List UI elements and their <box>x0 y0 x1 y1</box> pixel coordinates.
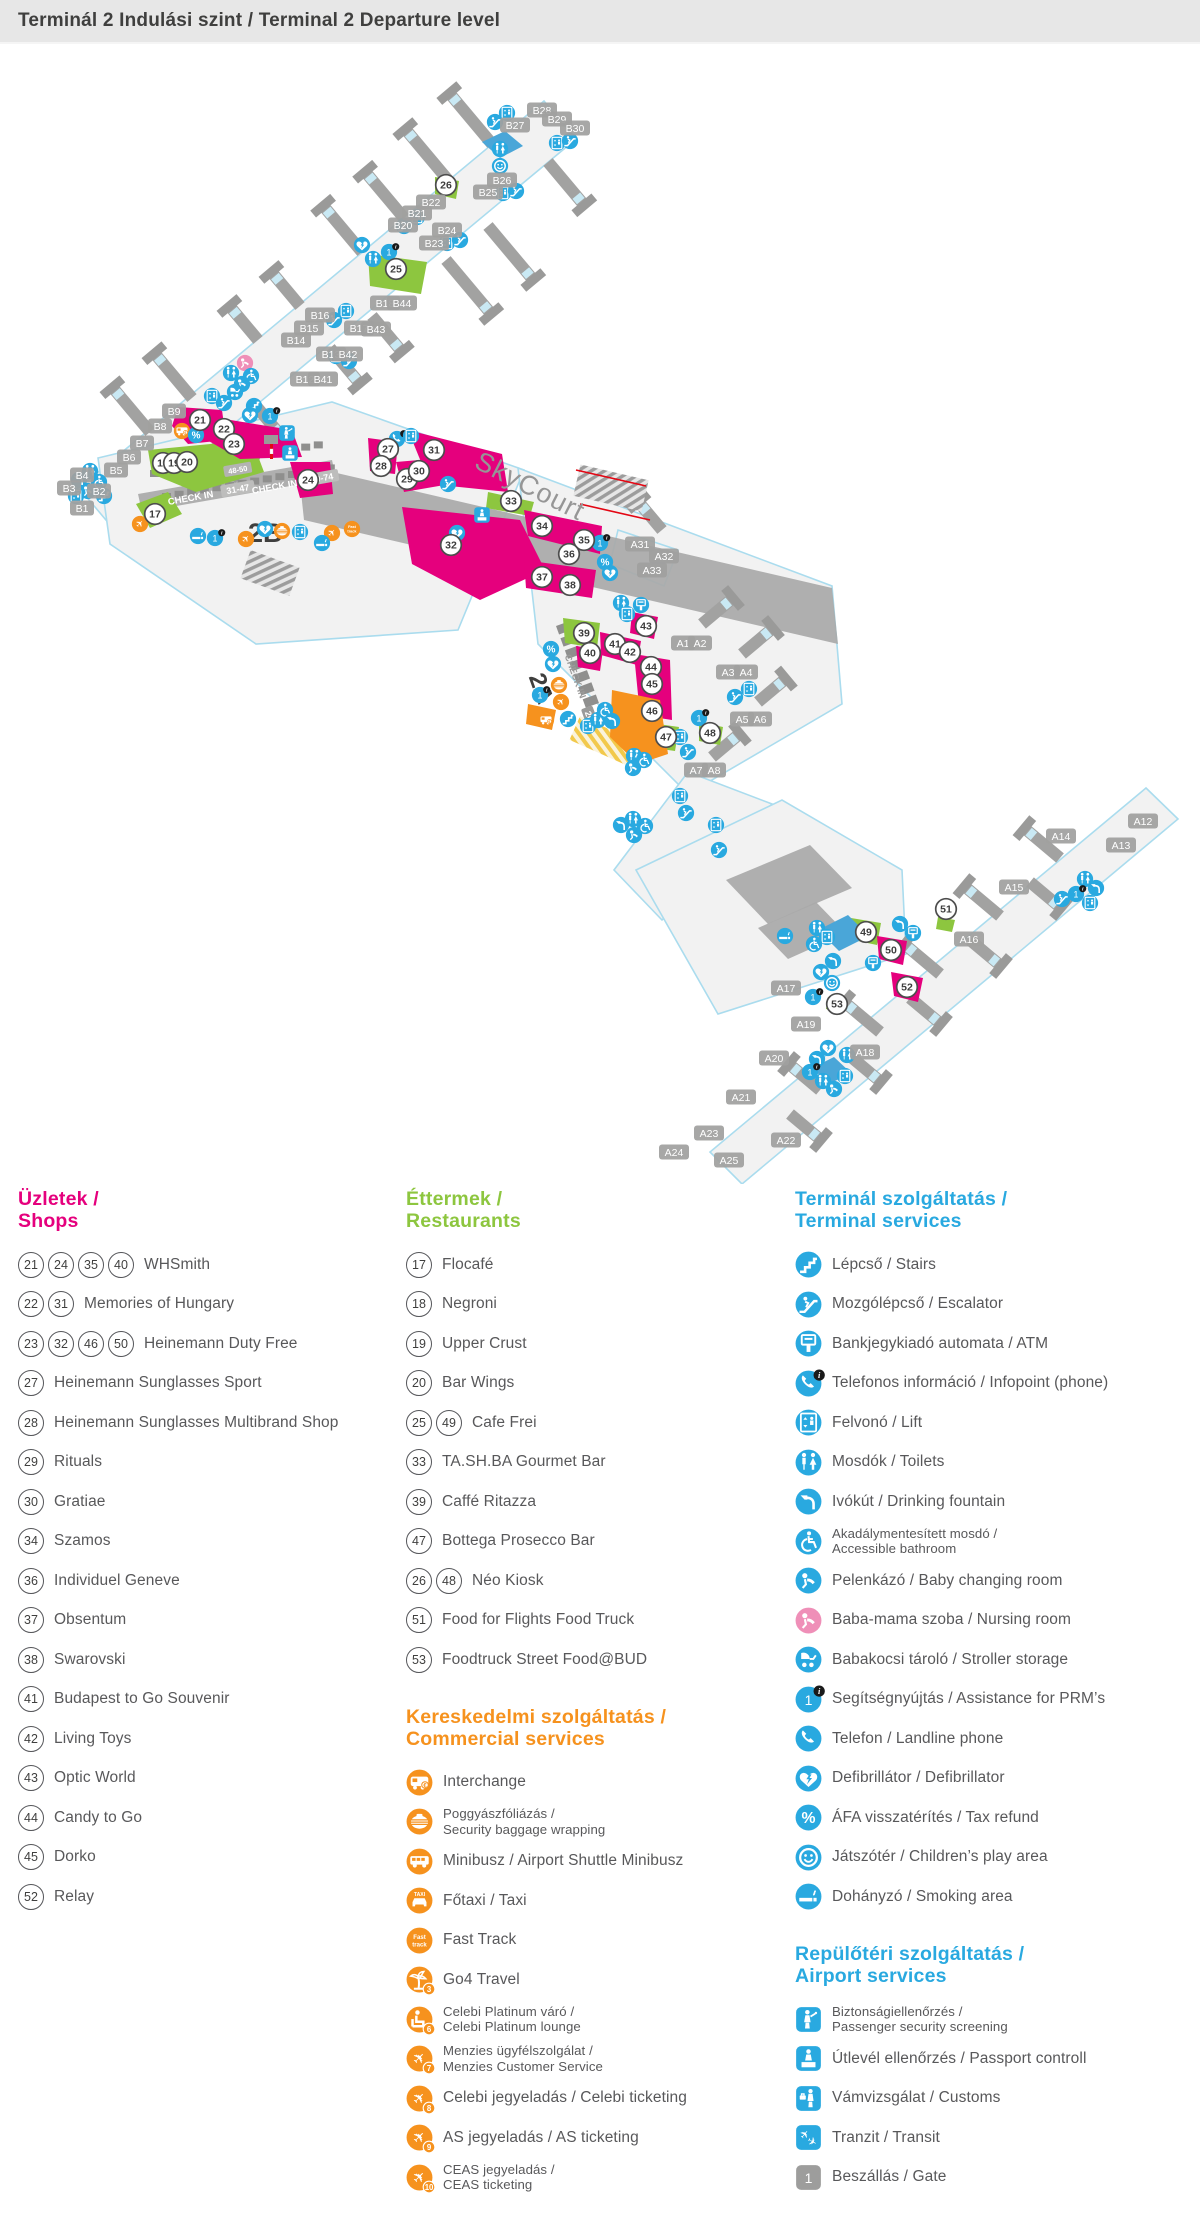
map-passport-icon <box>474 507 490 523</box>
svg-text:A15: A15 <box>1005 882 1024 894</box>
map-passport-icon <box>282 445 298 461</box>
svg-text:53: 53 <box>831 999 843 1011</box>
legend-item-label: Mosdók / Toilets <box>832 1453 944 1471</box>
number-circle: 20 <box>406 1370 432 1396</box>
map-marker-45: 45 <box>642 674 663 695</box>
legend-item-label: Celebi Platinum váró /Celebi Platinum lo… <box>443 2004 581 2035</box>
taxi-icon: TAXI <box>406 1887 433 1914</box>
gate-label-A21: A21 <box>726 1090 756 1105</box>
map-escalator-icon <box>216 395 232 411</box>
gate-label-A19: A19 <box>791 1017 821 1032</box>
map-toilets-icon <box>365 251 381 267</box>
map-play-icon <box>824 975 840 991</box>
svg-text:A5: A5 <box>736 714 749 726</box>
map-marker-32: 32 <box>441 535 462 556</box>
legend-item-label: Babakocsi tároló / Stroller storage <box>832 1651 1068 1669</box>
legend-item: FasttrackFast Track <box>406 1921 784 1961</box>
map-marker-43: 43 <box>636 616 657 637</box>
legend-item: 27Heinemann Sunglasses Sport <box>18 1364 390 1404</box>
legend-item-label: Upper Crust <box>442 1335 527 1353</box>
legend-item: Minibusz / Airport Shuttle Minibusz <box>406 1842 784 1882</box>
number-circle: 47 <box>406 1528 432 1554</box>
map-marker-25: 25 <box>386 259 407 280</box>
map-fountain-icon <box>1088 880 1104 896</box>
map-prm-icon: 1i <box>805 988 823 1005</box>
svg-text:A8: A8 <box>708 765 721 777</box>
svg-text:17: 17 <box>149 509 161 521</box>
gate-label-A15: A15 <box>999 880 1029 895</box>
legend-item: Akadálymentesített mosdó /Accessible bat… <box>795 1522 1195 1562</box>
svg-text:A17: A17 <box>777 983 796 995</box>
prm-info-icon: 1i <box>795 1686 822 1713</box>
svg-text:32: 32 <box>445 540 457 552</box>
svg-text:B26: B26 <box>493 175 512 187</box>
gate-label-B44: B44 <box>387 296 417 311</box>
terminal-map: SkyCourt2B2ACHECK IN31-47CHECK IN49-7448… <box>0 44 1200 1184</box>
item-number-markers: 30 <box>18 1489 44 1515</box>
map-toilets-icon <box>492 141 508 157</box>
legend-item-label: Fast Track <box>443 1931 516 1949</box>
map-marker-31: 31 <box>424 440 445 461</box>
legend-item-label: Caffé Ritazza <box>442 1493 536 1511</box>
legend-item-label: Ivókút / Drinking fountain <box>832 1493 1005 1511</box>
svg-text:27: 27 <box>382 444 394 456</box>
legend-item-label: Telefon / Landline phone <box>832 1730 1003 1748</box>
number-circle: 40 <box>108 1252 134 1278</box>
legend-item-label: Dorko <box>54 1848 96 1866</box>
plane-icon: ✈8 <box>406 2085 433 2112</box>
legend-item-label: Mozgólépcső / Escalator <box>832 1295 1003 1313</box>
map-marker-34: 34 <box>532 516 553 537</box>
legend-item-label: Bar Wings <box>442 1374 514 1392</box>
legend-item: ✈10CEAS jegyeladás /CEAS ticketing <box>406 2158 784 2198</box>
lounge-icon: 6 <box>406 2006 433 2033</box>
svg-text:B43: B43 <box>367 324 386 336</box>
legend-item: 34Szamos <box>18 1522 390 1562</box>
svg-text:A19: A19 <box>797 1019 816 1031</box>
number-circle: 27 <box>18 1370 44 1396</box>
map-play-icon <box>492 158 508 174</box>
legend-item: Biztonságiellenőrzés /Passenger security… <box>795 2000 1195 2040</box>
svg-text:1: 1 <box>598 539 603 549</box>
svg-text:23: 23 <box>228 439 240 451</box>
number-circle: 23 <box>18 1331 44 1357</box>
legend-item-label: TA.SH.BA Gourmet Bar <box>442 1453 606 1471</box>
number-circle: 17 <box>406 1252 432 1278</box>
svg-text:30: 30 <box>413 466 425 478</box>
gate-label-A2: A2 <box>688 636 712 651</box>
legend-item-label: CEAS jegyeladás /CEAS ticketing <box>443 2162 555 2193</box>
map-interchange-icon: € <box>174 423 190 439</box>
svg-text:31: 31 <box>428 445 440 457</box>
map-lift-icon <box>1082 895 1098 911</box>
map-defib-icon <box>820 1040 836 1056</box>
svg-text:1: 1 <box>811 993 816 1003</box>
map-fountain-icon <box>613 817 629 833</box>
legend-item: 17Flocafé <box>406 1245 784 1285</box>
jet-bridge <box>142 341 202 406</box>
svg-text:42: 42 <box>624 647 636 659</box>
legend-item: 39Caffé Ritazza <box>406 1482 784 1522</box>
map-escalator-icon <box>727 689 743 705</box>
number-circle: 22 <box>18 1291 44 1317</box>
legend-item-label: Candy to Go <box>54 1809 142 1827</box>
gate-label-B6: B6 <box>117 450 141 465</box>
svg-text:A31: A31 <box>631 539 650 551</box>
svg-text:%: % <box>192 430 201 441</box>
svg-text:TAXI: TAXI <box>414 1892 426 1898</box>
minibus-icon <box>406 1848 433 1875</box>
check-in-desk <box>263 475 272 482</box>
legend-item: 2648Néo Kiosk <box>406 1561 784 1601</box>
number-circle: 49 <box>436 1410 462 1436</box>
gate-label-B15: B15 <box>294 321 324 336</box>
legend-item: Mosdók / Toilets <box>795 1443 1195 1483</box>
map-baggage-icon <box>551 677 567 693</box>
svg-text:28: 28 <box>375 461 387 473</box>
svg-text:50: 50 <box>885 945 897 957</box>
map-marker-26: 26 <box>436 175 457 196</box>
map-plane-icon: ✈ <box>553 694 569 710</box>
legend-item: 47Bottega Prosecco Bar <box>406 1522 784 1562</box>
svg-text:B4: B4 <box>76 470 89 482</box>
gate-label-A6: A6 <box>748 712 772 727</box>
legend-item: Bankjegykiadó automata / ATM <box>795 1324 1195 1364</box>
legend-item-label: Poggyászfóliázás /Security baggage wrapp… <box>443 1806 605 1837</box>
map-baby-icon <box>625 760 641 776</box>
svg-text:1: 1 <box>268 412 273 422</box>
number-circle: 18 <box>406 1291 432 1317</box>
gate-label-A32: A32 <box>649 549 679 564</box>
legend-item-label: Gratiae <box>54 1493 106 1511</box>
map-escalator-icon <box>1054 891 1070 907</box>
play-icon <box>795 1844 822 1871</box>
legend-item: Babakocsi tároló / Stroller storage <box>795 1640 1195 1680</box>
map-marker-42: 42 <box>620 642 641 663</box>
svg-text:20: 20 <box>181 457 193 469</box>
gate-label-B16: B16 <box>305 308 335 323</box>
item-number-markers: 44 <box>18 1805 44 1831</box>
svg-text:B15: B15 <box>300 323 319 335</box>
legend-item-label: Vámvizsgálat / Customs <box>832 2089 1000 2107</box>
svg-text:A4: A4 <box>740 667 753 679</box>
legend-item: Vámvizsgálat / Customs <box>795 2079 1195 2119</box>
item-number-markers: 2231 <box>18 1291 74 1317</box>
legend-item: 33TA.SH.BA Gourmet Bar <box>406 1443 784 1483</box>
escalator-icon <box>795 1291 822 1318</box>
legend-section-shops: Üzletek /Shops 21243540WHSmith2231Memori… <box>18 1188 390 1917</box>
map-fountain-icon <box>604 713 620 729</box>
gate-label-B7: B7 <box>130 436 154 451</box>
item-number-markers: 23324650 <box>18 1331 134 1357</box>
legend-item-label: Individuel Geneve <box>54 1572 180 1590</box>
jet-bridge <box>478 218 546 292</box>
map-stairs-icon <box>560 711 576 727</box>
svg-text:44: 44 <box>645 662 657 674</box>
legend-item: TAXIFőtaxi / Taxi <box>406 1881 784 1921</box>
gate-label-A17: A17 <box>771 981 801 996</box>
map-marker-30: 30 <box>409 461 430 482</box>
legend-item-label: Néo Kiosk <box>472 1572 544 1590</box>
check-in-desk <box>275 473 284 480</box>
terminal-map-svg: SkyCourt2B2ACHECK IN31-47CHECK IN49-7448… <box>0 44 1200 1184</box>
legend-item-label: Biztonságiellenőrzés /Passenger security… <box>832 2004 1008 2035</box>
map-marker-40: 40 <box>580 643 601 664</box>
legend-item-label: Memories of Hungary <box>84 1295 234 1313</box>
legend-item: 23324650Heinemann Duty Free <box>18 1324 390 1364</box>
svg-text:%: % <box>547 644 556 655</box>
legend-item: Játszótér / Children’s play area <box>795 1838 1195 1878</box>
item-number-markers: 38 <box>18 1647 44 1673</box>
legend-section-restaurants: Éttermek /Restaurants 17Flocafé18Negroni… <box>406 1188 784 1680</box>
map-marker-23: 23 <box>224 434 245 455</box>
legend-section-terminal-services: Terminál szolgáltatás /Terminal services… <box>795 1188 1195 1917</box>
item-number-markers: 37 <box>18 1607 44 1633</box>
legend-item: 38Swarovski <box>18 1640 390 1680</box>
fountain-icon <box>795 1488 822 1515</box>
legend-item-label: Bankjegykiadó automata / ATM <box>832 1335 1048 1353</box>
number-circle: 31 <box>48 1291 74 1317</box>
map-escalator-icon <box>711 842 727 858</box>
legend-item: 2231Memories of Hungary <box>18 1285 390 1325</box>
svg-text:A3: A3 <box>722 667 735 679</box>
map-defib-icon <box>257 521 273 537</box>
item-number-markers: 53 <box>406 1647 432 1673</box>
legend-item: 2549Cafe Frei <box>406 1403 784 1443</box>
legend-item-label: Food for Flights Food Truck <box>442 1611 634 1629</box>
map-escalator-icon <box>680 744 696 760</box>
map-marker-47: 47 <box>656 727 677 748</box>
svg-text:38: 38 <box>564 580 576 592</box>
map-defib-icon <box>242 407 258 423</box>
svg-text:B27: B27 <box>506 120 525 132</box>
svg-text:A23: A23 <box>700 1128 719 1140</box>
terminal-services-title: Terminál szolgáltatás /Terminal services <box>795 1188 1195 1232</box>
legend-item-label: Negroni <box>442 1295 497 1313</box>
customs-icon <box>795 2085 822 2112</box>
legend-item-label: Flocafé <box>442 1256 494 1274</box>
svg-text:A1: A1 <box>677 638 690 650</box>
legend-item: 30Gratiae <box>18 1482 390 1522</box>
map-marker-24: 24 <box>298 470 319 491</box>
svg-text:24: 24 <box>302 475 314 487</box>
legend-item: Mozgólépcső / Escalator <box>795 1285 1195 1325</box>
map-marker-20: 20 <box>177 452 198 473</box>
svg-text:B2: B2 <box>93 486 106 498</box>
map-smoking-icon <box>777 928 793 944</box>
map-security-icon <box>279 425 295 441</box>
item-number-markers: 42 <box>18 1726 44 1752</box>
map-interchange-icon: € <box>538 712 554 728</box>
svg-text:1: 1 <box>538 691 543 701</box>
map-marker-52: 52 <box>897 977 918 998</box>
legend-item-label: Interchange <box>443 1773 526 1791</box>
legend-item: 28Heinemann Sunglasses Multibrand Shop <box>18 1403 390 1443</box>
legend-item: %ÁFA visszatérítés / Tax refund <box>795 1798 1195 1838</box>
legend-item: Telefon / Landline phone <box>795 1719 1195 1759</box>
legend-item-label: Cafe Frei <box>472 1414 537 1432</box>
interchange-icon: € <box>406 1769 433 1796</box>
legend-item-label: Felvonó / Lift <box>832 1414 922 1432</box>
item-number-markers: 52 <box>18 1884 44 1910</box>
gate-label-B43: B43 <box>361 322 391 337</box>
item-number-markers: 41 <box>18 1686 44 1712</box>
legend-item: 36Individuel Geneve <box>18 1561 390 1601</box>
number-circle: 36 <box>18 1568 44 1594</box>
gate-label-B5: B5 <box>104 463 128 478</box>
number-circle: 34 <box>18 1528 44 1554</box>
svg-text:1: 1 <box>387 248 392 258</box>
legend-item-label: Dohányzó / Smoking area <box>832 1888 1013 1906</box>
svg-text:B42: B42 <box>339 349 358 361</box>
legend-column-restaurants-commercial: Éttermek /Restaurants 17Flocafé18Negroni… <box>406 1188 784 2197</box>
fasttrack-icon: Fasttrack <box>406 1927 433 1954</box>
phone-icon <box>795 1725 822 1752</box>
legend-item-label: Beszállás / Gate <box>832 2168 946 2186</box>
svg-text:49: 49 <box>860 927 872 939</box>
svg-text:47: 47 <box>660 732 672 744</box>
map-defib-icon <box>602 565 618 581</box>
legend-item: iTelefonos információ / Infopoint (phone… <box>795 1364 1195 1404</box>
legend-item-label: Living Toys <box>54 1730 132 1748</box>
svg-text:40: 40 <box>584 648 596 660</box>
map-marker-48: 48 <box>700 723 721 744</box>
number-circle: 41 <box>18 1686 44 1712</box>
legend-item: 41Budapest to Go Souvenir <box>18 1680 390 1720</box>
security-icon <box>795 2006 822 2033</box>
nursing-icon <box>795 1607 822 1634</box>
legend-item-label: Heinemann Sunglasses Multibrand Shop <box>54 1414 339 1432</box>
svg-text:B44: B44 <box>393 298 412 310</box>
svg-text:B22: B22 <box>422 197 441 209</box>
restaurants-title: Éttermek /Restaurants <box>406 1188 784 1232</box>
plane-icon: ✈10 <box>406 2164 433 2191</box>
map-lift-icon <box>708 817 724 833</box>
legend-item: 53Foodtruck Street Food@BUD <box>406 1640 784 1680</box>
map-marker-33: 33 <box>501 491 522 512</box>
defib-icon <box>795 1765 822 1792</box>
legend-item-label: AS jegyeladás / AS ticketing <box>443 2129 639 2147</box>
item-number-markers: 2549 <box>406 1410 462 1436</box>
item-number-markers: 51 <box>406 1607 432 1633</box>
map-fasttrack-icon: Fasttrack <box>344 521 360 537</box>
legend-item: Defibrillátor / Defibrillator <box>795 1759 1195 1799</box>
gate-label-B23: B23 <box>419 236 449 251</box>
legend-item: Dohányzó / Smoking area <box>795 1877 1195 1917</box>
gate-label-B41: B41 <box>308 372 338 387</box>
legend-item-label: Budapest to Go Souvenir <box>54 1690 230 1708</box>
legend-item-label: Játszótér / Children’s play area <box>832 1848 1048 1866</box>
svg-text:A21: A21 <box>732 1092 751 1104</box>
map-atm-icon <box>633 597 649 613</box>
map-marker-36: 36 <box>559 544 580 565</box>
svg-text:B20: B20 <box>394 220 413 232</box>
map-marker-28: 28 <box>371 456 392 477</box>
map-marker-17: 17 <box>145 504 166 525</box>
svg-text:track: track <box>347 530 357 534</box>
accessible-icon <box>795 1528 822 1555</box>
svg-text:9: 9 <box>427 2143 432 2152</box>
commercial-title: Kereskedelmi szolgáltatás /Commercial se… <box>406 1706 784 1750</box>
map-tax-icon: % <box>543 641 559 657</box>
map-marker-53: 53 <box>827 994 848 1015</box>
svg-text:52: 52 <box>901 982 913 994</box>
number-circle: 24 <box>48 1252 74 1278</box>
legend-item: Baba-mama szoba / Nursing room <box>795 1601 1195 1641</box>
svg-text:1: 1 <box>1074 890 1079 900</box>
gate-label-B9: B9 <box>162 404 186 419</box>
svg-text:B21: B21 <box>408 208 427 220</box>
svg-text:7: 7 <box>427 2064 432 2073</box>
svg-text:B23: B23 <box>425 238 444 250</box>
number-circle: 53 <box>406 1647 432 1673</box>
legend-item: 42Living Toys <box>18 1719 390 1759</box>
passport-icon <box>795 2045 822 2072</box>
svg-text:33: 33 <box>505 496 517 508</box>
map-accessible-icon <box>806 936 822 952</box>
svg-text:48: 48 <box>704 728 716 740</box>
number-circle: 37 <box>18 1607 44 1633</box>
item-number-markers: 47 <box>406 1528 432 1554</box>
number-circle: 43 <box>18 1765 44 1791</box>
gate-icon: 1 <box>795 2164 822 2191</box>
item-number-markers: 20 <box>406 1370 432 1396</box>
number-circle: 33 <box>406 1449 432 1475</box>
map-marker-38: 38 <box>560 575 581 596</box>
svg-text:1: 1 <box>697 714 702 724</box>
svg-text:B7: B7 <box>136 438 149 450</box>
svg-text:B41: B41 <box>314 374 333 386</box>
number-circle: 30 <box>18 1489 44 1515</box>
svg-text:B5: B5 <box>110 465 123 477</box>
svg-text:45: 45 <box>646 679 658 691</box>
gate-label-A16: A16 <box>954 932 984 947</box>
map-smoking-icon <box>190 528 206 544</box>
legend-section-commercial: Kereskedelmi szolgáltatás /Commercial se… <box>406 1706 784 2198</box>
baby-icon <box>795 1567 822 1594</box>
svg-text:A13: A13 <box>1112 840 1131 852</box>
gate-label-A13: A13 <box>1106 838 1136 853</box>
item-number-markers: 34 <box>18 1528 44 1554</box>
map-lift-icon <box>292 524 308 540</box>
svg-text:B1: B1 <box>76 503 89 515</box>
svg-text:1: 1 <box>213 534 218 544</box>
atm-icon <box>795 1330 822 1357</box>
map-defib-icon <box>545 656 561 672</box>
legend-item-label: Heinemann Duty Free <box>144 1335 298 1353</box>
go4-icon: 3 <box>406 1966 433 1993</box>
legend-column-services: Terminál szolgáltatás /Terminal services… <box>795 1188 1195 2197</box>
legend-item-label: Celebi jegyeladás / Celebi ticketing <box>443 2089 687 2107</box>
gate-label-B4: B4 <box>70 468 94 483</box>
svg-text:A12: A12 <box>1134 816 1153 828</box>
svg-text:B3: B3 <box>63 483 76 495</box>
map-defib-icon <box>354 237 370 253</box>
gate-label-B30: B30 <box>560 121 590 136</box>
legend-item-label: Foodtruck Street Food@BUD <box>442 1651 647 1669</box>
number-circle: 48 <box>436 1568 462 1594</box>
svg-text:37: 37 <box>536 572 548 584</box>
map-escalator-icon <box>440 476 456 492</box>
legend-item-label: ÁFA visszatérítés / Tax refund <box>832 1809 1039 1827</box>
toilets-icon <box>795 1449 822 1476</box>
gate-label-A25: A25 <box>714 1153 744 1168</box>
map-lift-icon <box>619 606 635 622</box>
svg-text:22: 22 <box>218 424 230 436</box>
gate-label-B26: B26 <box>487 173 517 188</box>
gate-label-B27: B27 <box>500 118 530 133</box>
number-circle: 28 <box>18 1410 44 1436</box>
